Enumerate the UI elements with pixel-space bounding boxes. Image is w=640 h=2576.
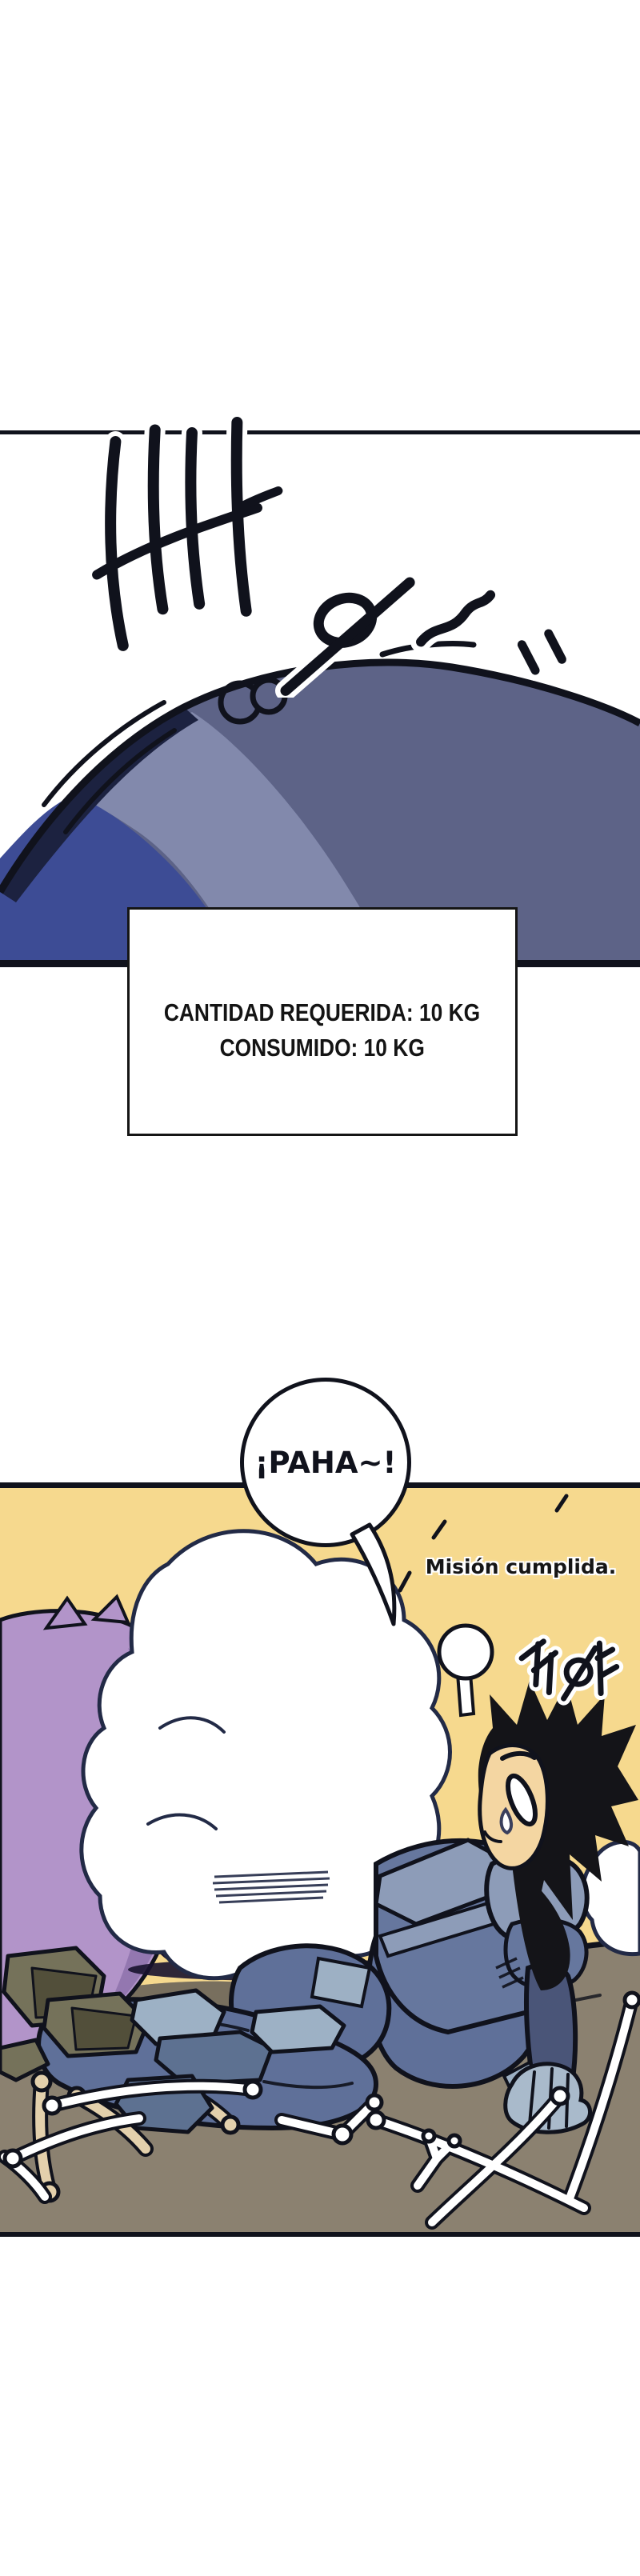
sfx-boom-calligraphy: [72, 410, 568, 698]
hero-face: [480, 1746, 548, 1869]
caption-mission: Misión cumplida.: [418, 1555, 623, 1578]
comic-page: CANTIDAD REQUERIDA: 10 KG CONSUMIDO: 10 …: [0, 0, 640, 2576]
speech-bubble-tail: [342, 1518, 414, 1634]
status-line-required: CANTIDAD REQUERIDA: 10 KG: [164, 999, 480, 1026]
status-box: CANTIDAD REQUERIDA: 10 KG CONSUMIDO: 10 …: [127, 907, 518, 1136]
status-line-consumed: CONSUMIDO: 10 KG: [220, 1034, 425, 1062]
scene-art: [0, 1488, 640, 2232]
scene-panel: [0, 1482, 640, 2237]
speech-bubble-text: ¡PAHA~!: [255, 1446, 397, 1480]
